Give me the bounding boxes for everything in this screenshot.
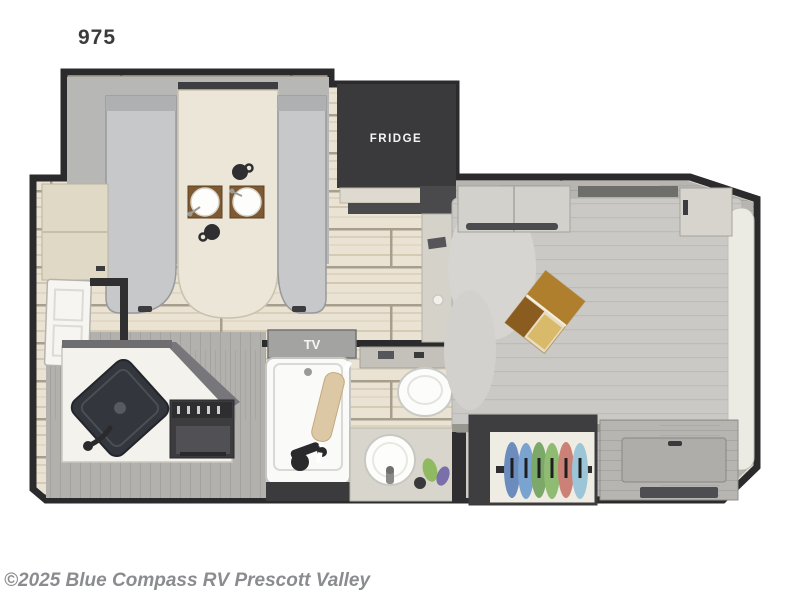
bench-strap (138, 306, 152, 312)
dinette-bench-right (278, 96, 326, 313)
overhead-cabinet (458, 186, 570, 232)
dresser (600, 420, 738, 500)
copyright-watermark: ©2025 Blue Compass RV Prescott Valley (4, 570, 370, 592)
bathroom-vanity (350, 428, 464, 501)
step-mat (640, 487, 718, 498)
drawer-handle (668, 441, 682, 446)
fridge-label: FRIDGE (370, 133, 422, 145)
floorplan-page: 975 (0, 0, 800, 600)
tv-label: TV (304, 337, 321, 352)
tv-cabinet: TV (268, 330, 356, 358)
bench-strap (292, 306, 306, 312)
floorplan-drawing: FRIDGE (0, 0, 800, 600)
place-setting-left (188, 186, 223, 218)
corner-cabinet (680, 188, 732, 236)
place-setting-right (230, 186, 265, 218)
wardrobe (470, 416, 596, 504)
toilet (398, 368, 452, 416)
window-recess (578, 186, 678, 197)
shower-head (304, 368, 312, 376)
dinette (106, 82, 326, 318)
stove (170, 400, 234, 458)
